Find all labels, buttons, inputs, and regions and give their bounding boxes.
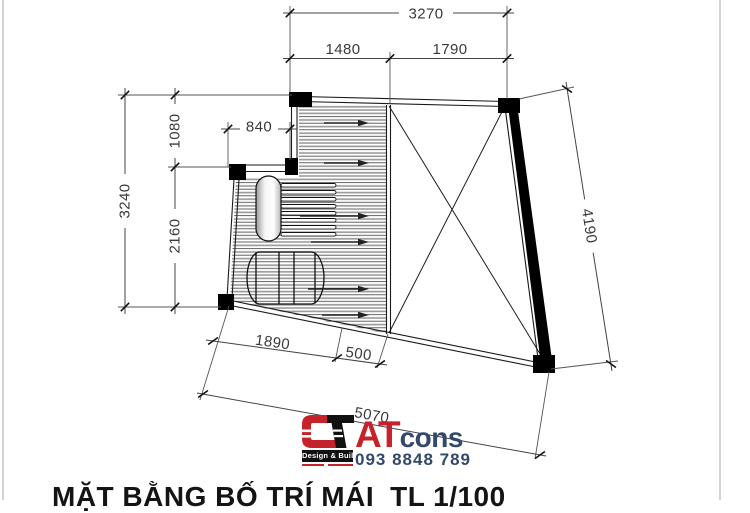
dim-left-seg-upper: 1080 (167, 114, 184, 149)
brand-phone: 093 8848 789 (355, 450, 471, 470)
drawing-title-text: MẶT BẰNG BỐ TRÍ MÁI (52, 481, 374, 512)
skylight-panel (389, 102, 546, 363)
brand-tagline: Design & Build (302, 450, 353, 462)
atcons-logo-icon (302, 415, 355, 455)
column (533, 355, 555, 373)
dim-step-width: 840 (246, 119, 272, 136)
company-logo: ATcons Design & Build 093 8848 789 (300, 406, 470, 470)
solar-tank (256, 176, 281, 241)
dim-top-seg-left: 1480 (326, 41, 361, 58)
dim-right-total: 4190 (578, 207, 600, 244)
dim-top-total: 3270 (409, 6, 444, 23)
dim-bottom-seg-mid: 500 (344, 344, 372, 364)
brand-primary: AT (355, 414, 400, 455)
drawing-sheet: { "drawing": { "name": "roof-layout-plan… (0, 0, 750, 500)
column (229, 164, 246, 180)
tagline-underline (302, 464, 324, 466)
tagline-underline (328, 464, 353, 466)
dim-bottom-seg-left: 1890 (254, 332, 291, 354)
column (289, 92, 312, 107)
dim-left-total: 3240 (117, 184, 134, 219)
dim-left-seg-lower: 2160 (167, 219, 184, 254)
drawing-scale: TL 1/100 (390, 481, 506, 512)
dim-top-seg-right: 1790 (433, 41, 468, 58)
brand-secondary: cons (400, 422, 463, 453)
column (285, 158, 298, 175)
drawing-title: MẶT BẰNG BỐ TRÍ MÁITL 1/100 (52, 481, 506, 513)
column (218, 294, 234, 310)
column (498, 98, 520, 113)
